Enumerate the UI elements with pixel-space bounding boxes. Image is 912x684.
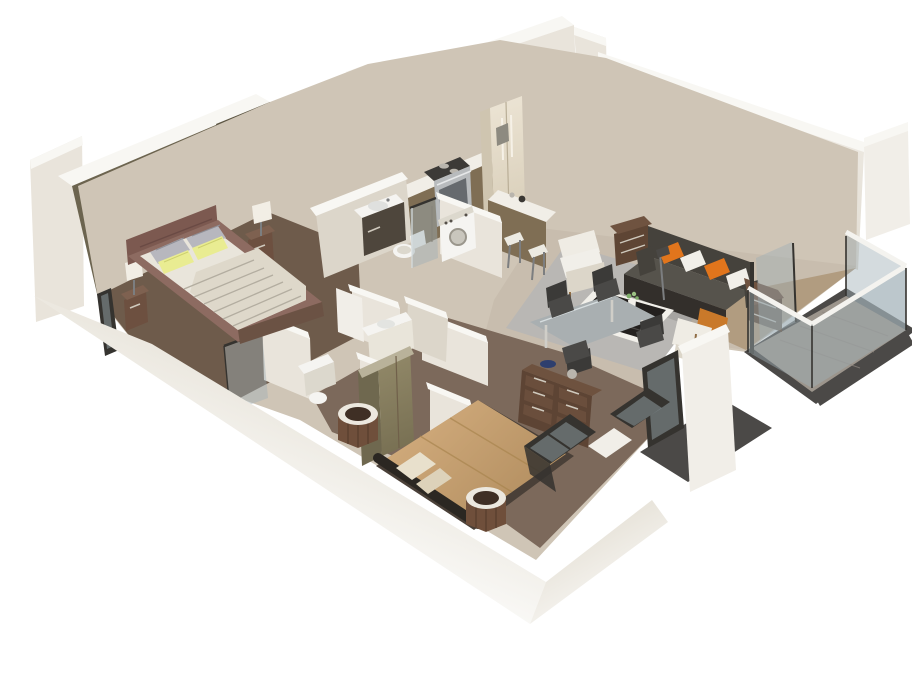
silver-vase	[567, 369, 577, 379]
exterior-left-wall	[30, 136, 84, 322]
drum-side-table	[338, 403, 378, 448]
drum-side-table	[466, 487, 506, 532]
floor-plan-render	[0, 0, 912, 684]
apartment-3d-floor-plan	[0, 0, 912, 684]
exterior-right-wall	[864, 122, 910, 240]
shower-glass-screen	[410, 198, 438, 268]
blue-bowl	[540, 360, 556, 368]
